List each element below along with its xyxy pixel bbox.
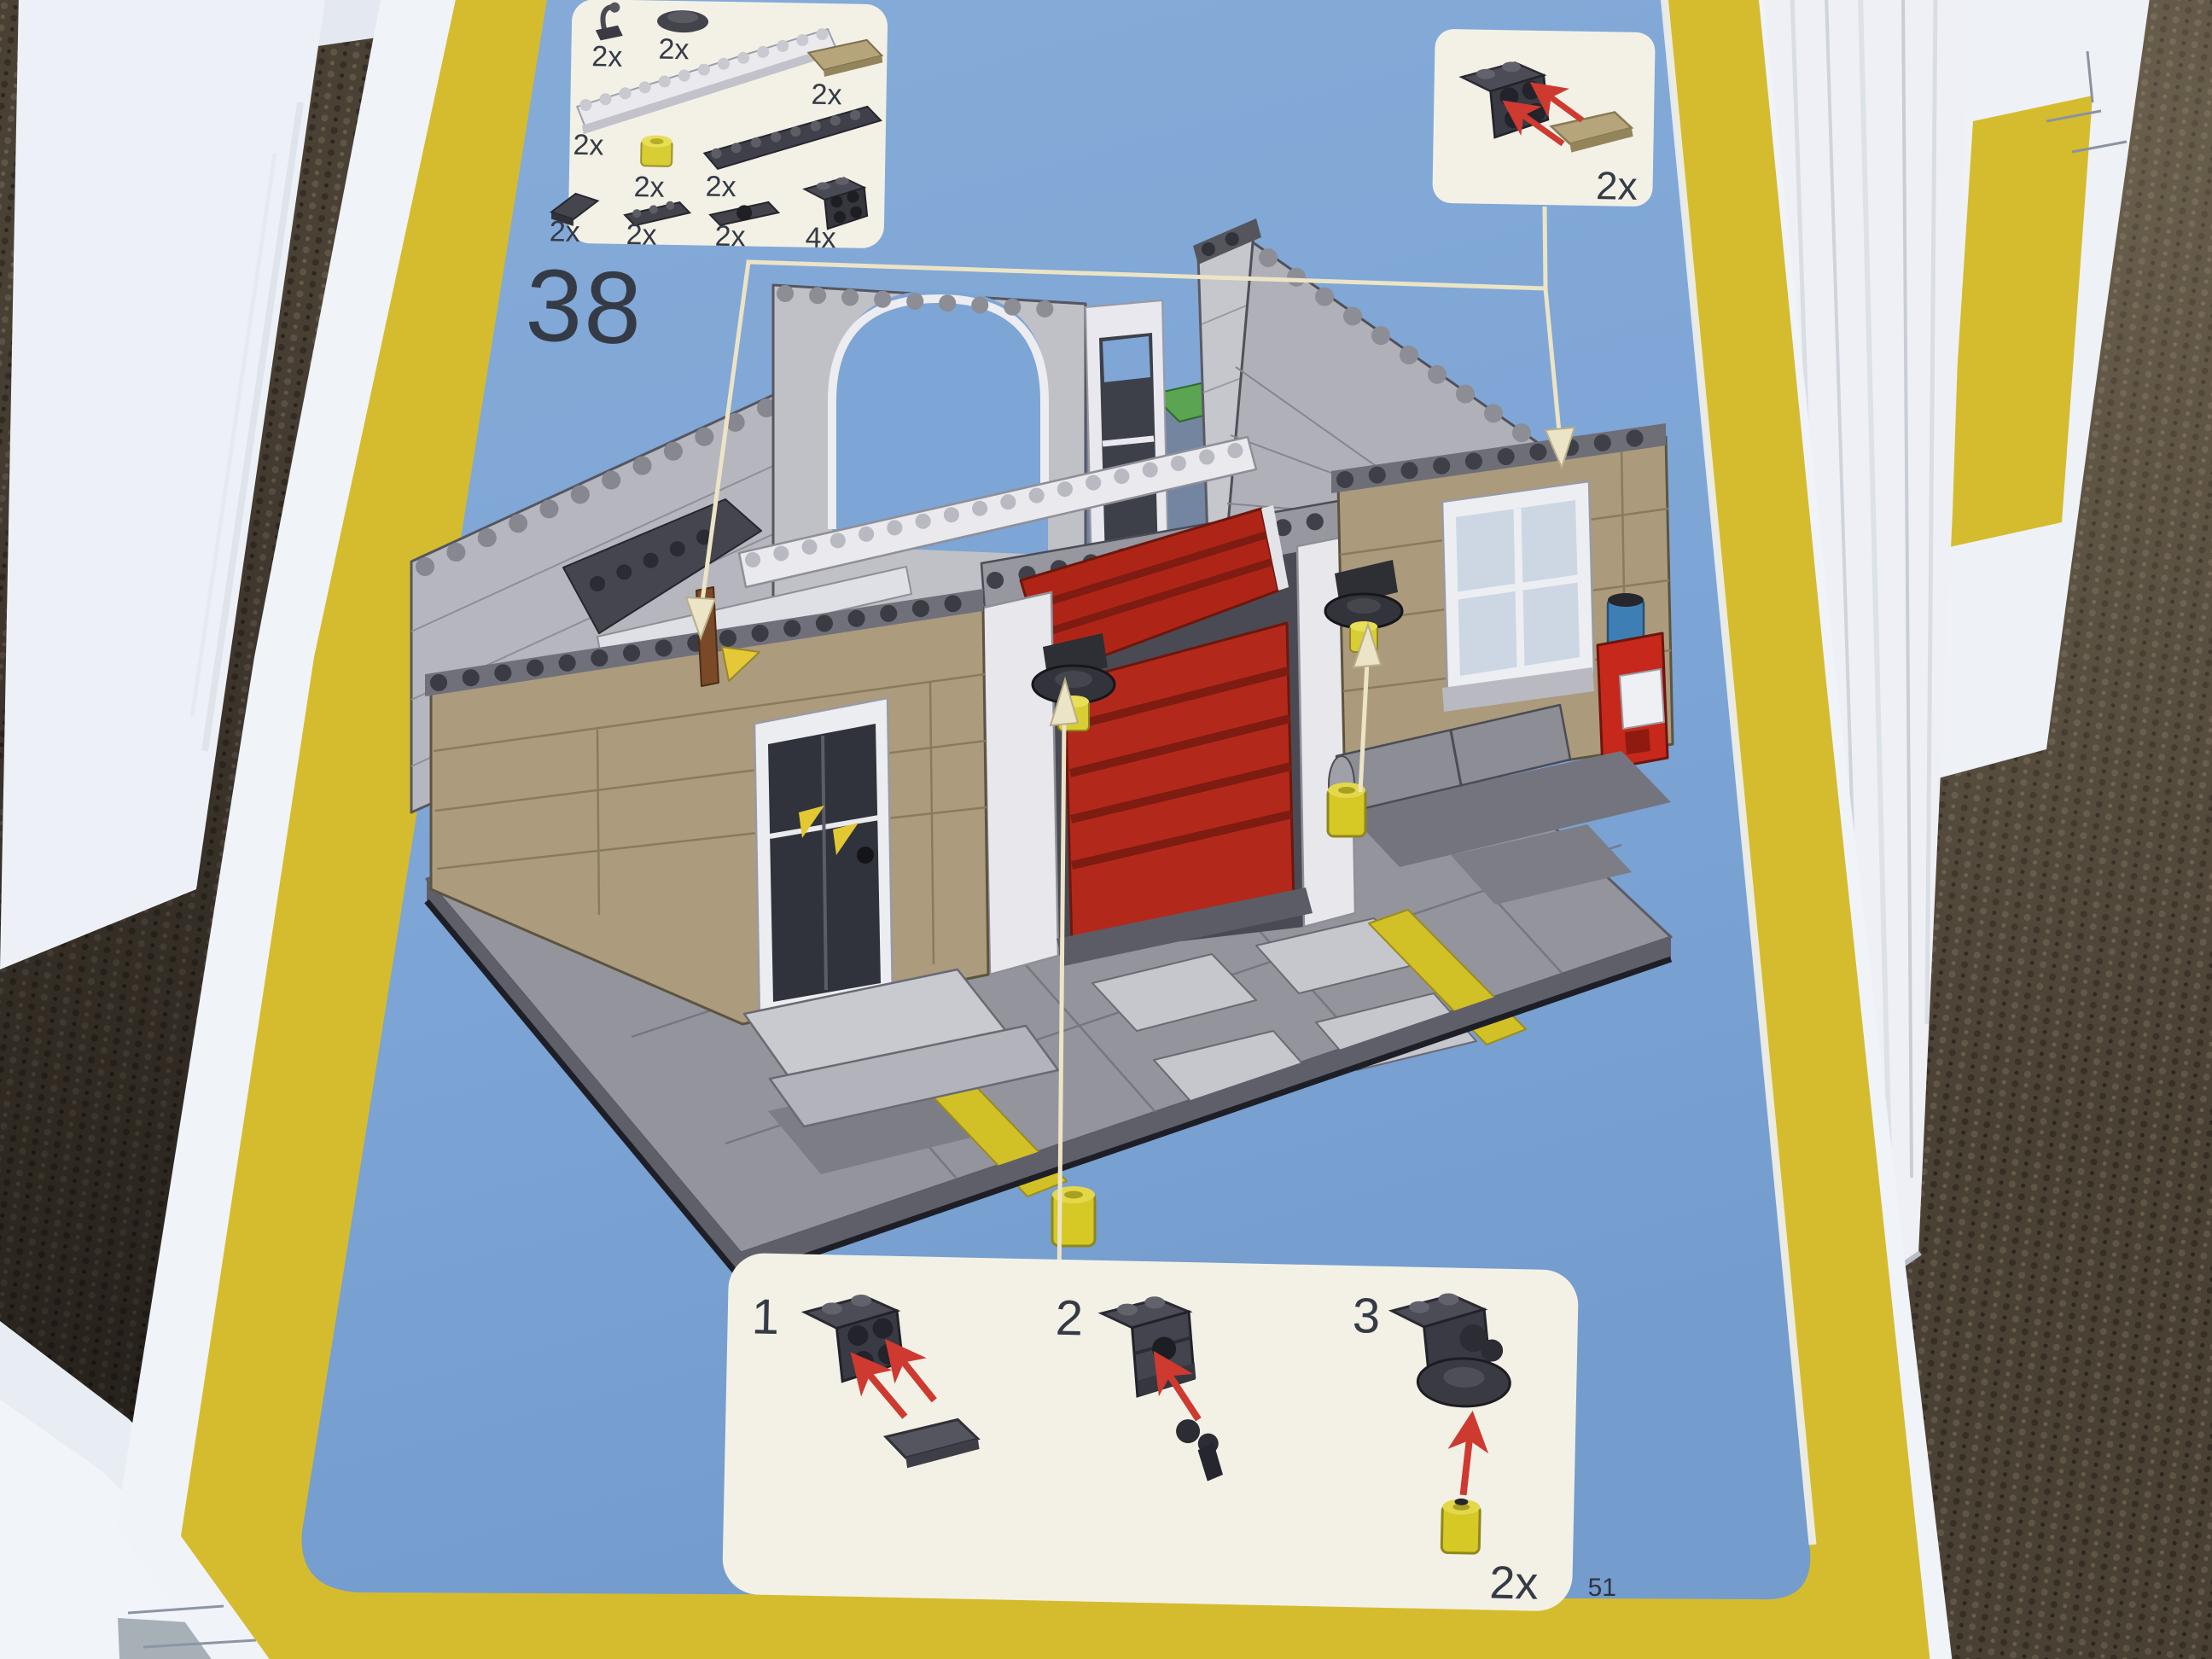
callout-qty: 2x: [1596, 163, 1638, 208]
part-qty: 2x: [705, 171, 736, 204]
bottom-step-label: 1: [751, 1289, 780, 1345]
part-qty: 2x: [626, 218, 657, 252]
part-qty: 2x: [714, 220, 746, 253]
parts-panel: 2x 2x 2x 2x 2x 2x 2x 2x 2x 4x: [549, 0, 888, 255]
bottom-callout: 1 2: [722, 1253, 1579, 1612]
garage-bay: [981, 499, 1355, 975]
part-qty: 2x: [549, 215, 580, 248]
entrance-door: [754, 698, 893, 1021]
window: [1442, 481, 1594, 712]
part-qty: 4x: [805, 222, 836, 255]
photo-of-lego-instruction-page: 2x 2x 2x 2x 2x 2x 2x 2x 2x 4x 38: [0, 0, 2212, 1659]
yellow-round-brick-icon: [641, 135, 672, 166]
part-qty: 2x: [633, 171, 665, 204]
bottom-step-label: 3: [1352, 1288, 1381, 1344]
bottom-callout-qty: 2x: [1489, 1557, 1539, 1610]
part-qty: 2x: [591, 40, 623, 73]
step3-yellow-brick-icon: [1441, 1498, 1480, 1553]
part-qty: 2x: [658, 33, 690, 67]
bottom-step-label: 2: [1055, 1290, 1084, 1347]
step-number: 38: [524, 247, 645, 366]
page-number: 51: [1588, 1574, 1616, 1602]
top-right-callout: 2x: [1432, 29, 1656, 208]
part-qty: 2x: [811, 79, 842, 112]
part-qty: 2x: [573, 129, 604, 162]
manual-page: 2x 2x 2x 2x 2x 2x 2x 2x 2x 4x 38: [116, 0, 1953, 1659]
